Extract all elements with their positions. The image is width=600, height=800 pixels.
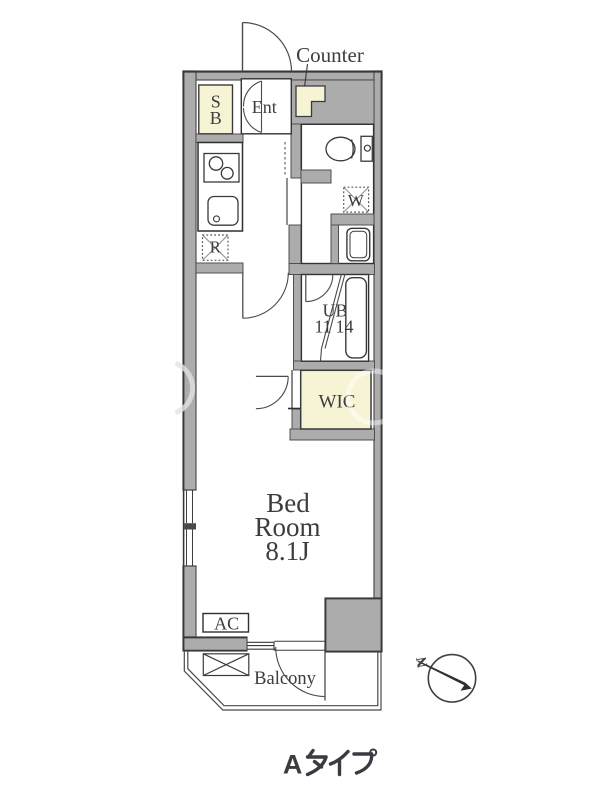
- svg-text:W: W: [348, 191, 365, 210]
- svg-text:B: B: [210, 108, 222, 128]
- svg-text:R: R: [210, 238, 221, 257]
- svg-text:AC: AC: [214, 614, 239, 634]
- svg-text:Balcony: Balcony: [254, 669, 316, 689]
- svg-text:8.1J: 8.1J: [265, 536, 309, 566]
- svg-text:Counter: Counter: [296, 43, 364, 67]
- svg-text:A: A: [283, 750, 303, 780]
- svg-text:Ent: Ent: [252, 97, 277, 117]
- svg-text:14: 14: [336, 317, 354, 337]
- svg-text:11: 11: [314, 317, 331, 337]
